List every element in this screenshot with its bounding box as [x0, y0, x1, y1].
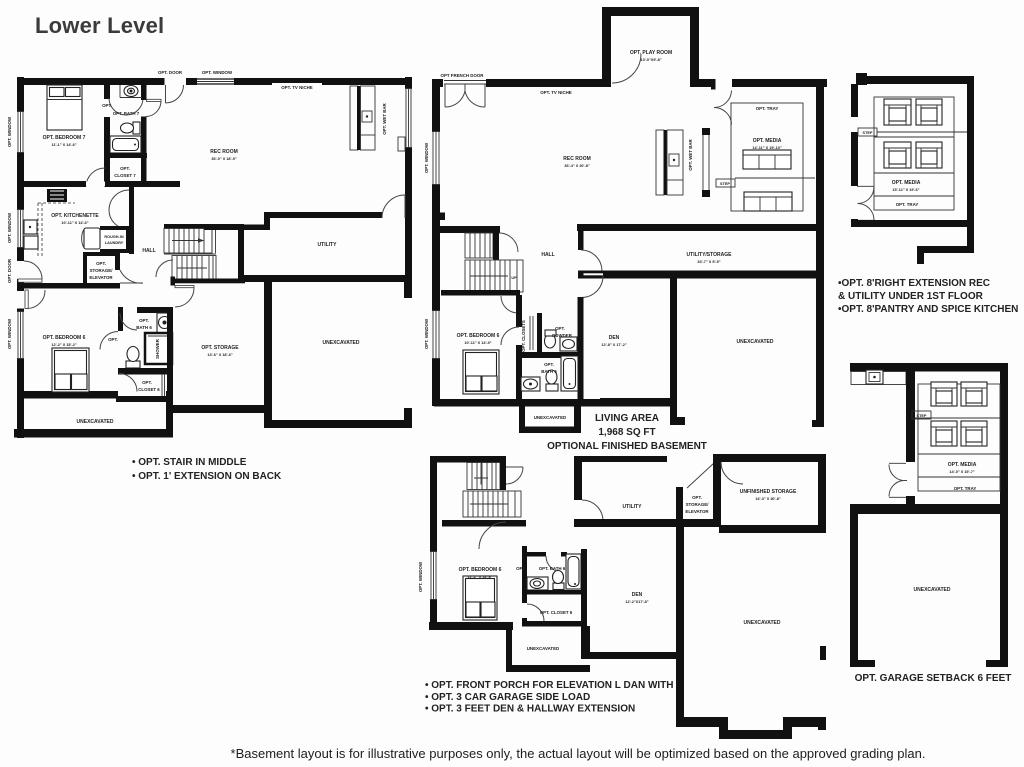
svg-text:UNEXCAVATED: UNEXCAVATED	[323, 340, 360, 346]
svg-text:REC ROOM: REC ROOM	[210, 149, 238, 155]
svg-text:OPT. WINDOW: OPT. WINDOW	[7, 318, 12, 349]
svg-text:• OPT. 3 FEET DEN & HALLWAY EX: • OPT. 3 FEET DEN & HALLWAY EXTENSION	[425, 704, 635, 715]
svg-text:ELEVATOR: ELEVATOR	[685, 509, 709, 514]
svg-text:OPT. WINDOW: OPT. WINDOW	[202, 70, 233, 75]
svg-text:36'-4" X 20'-8": 36'-4" X 20'-8"	[564, 164, 589, 168]
svg-text:12'-2" X 15'-2": 12'-2" X 15'-2"	[51, 343, 76, 347]
svg-text:OPT.: OPT.	[142, 380, 152, 385]
svg-text:OPTIONAL FINISHED BASEMENT: OPTIONAL FINISHED BASEMENT	[547, 441, 707, 452]
svg-text:BATH 6: BATH 6	[541, 369, 557, 374]
svg-text:UTILITY/STORAGE: UTILITY/STORAGE	[687, 252, 733, 258]
svg-text:BATH 6: BATH 6	[136, 325, 152, 330]
svg-text:OPT. CLOSET 6: OPT. CLOSET 6	[540, 610, 573, 615]
svg-text:OPT.: OPT.	[96, 261, 106, 266]
svg-text:OPT. WINDOW: OPT. WINDOW	[418, 561, 423, 592]
svg-text:13'-0"X9'-8": 13'-0"X9'-8"	[640, 58, 661, 62]
svg-text:OPT. WET BAR: OPT. WET BAR	[382, 102, 387, 134]
svg-text:STEP: STEP	[917, 414, 927, 418]
svg-text:UTILITY: UTILITY	[318, 242, 338, 248]
svg-text:LIVING AREA: LIVING AREA	[595, 413, 659, 424]
svg-text:OPT. PLAY ROOM: OPT. PLAY ROOM	[630, 50, 672, 56]
svg-text:Lower Level: Lower Level	[35, 13, 164, 38]
svg-text:• OPT. STAIR IN MIDDLE: • OPT. STAIR IN MIDDLE	[132, 457, 247, 468]
svg-text:OPT. WINDOW: OPT. WINDOW	[7, 212, 12, 243]
svg-text:OPT. KITCHENETTE: OPT. KITCHENETTE	[51, 213, 99, 219]
svg-text:36'-0" X 18'-9": 36'-0" X 18'-9"	[211, 157, 236, 161]
svg-text:REC ROOM: REC ROOM	[563, 156, 591, 162]
svg-text:10'-11" X 14'-6": 10'-11" X 14'-6"	[61, 221, 88, 225]
svg-text:OPT. MEDIA: OPT. MEDIA	[892, 180, 921, 186]
svg-text:OPT. TRAY: OPT. TRAY	[756, 106, 779, 111]
svg-text:OPT.: OPT.	[102, 103, 112, 108]
svg-text:ELEVATOR: ELEVATOR	[89, 275, 113, 280]
svg-text:OPT. BEDROOM 7: OPT. BEDROOM 7	[43, 135, 86, 141]
svg-text:UNEXCAVATED: UNEXCAVATED	[527, 646, 559, 651]
svg-text:OPT. TV NICHE: OPT. TV NICHE	[281, 85, 313, 90]
svg-text:33'-7" X 5'-9": 33'-7" X 5'-9"	[697, 260, 720, 264]
svg-text:UNEXCAVATED: UNEXCAVATED	[914, 587, 951, 593]
svg-text:•OPT. 8'RIGHT EXTENSION REC: •OPT. 8'RIGHT EXTENSION REC	[838, 278, 990, 289]
svg-text:ROUGH-IN: ROUGH-IN	[104, 235, 123, 239]
svg-text:10'-11" X 14'-9": 10'-11" X 14'-9"	[464, 341, 491, 345]
svg-text:LAUNDRY: LAUNDRY	[105, 241, 124, 245]
svg-text:OPT.: OPT.	[692, 495, 702, 500]
svg-text:HALL: HALL	[142, 248, 155, 254]
svg-text:OPT. BEDROOM 6: OPT. BEDROOM 6	[457, 333, 500, 339]
svg-text:OPT. TRAY: OPT. TRAY	[954, 486, 977, 491]
svg-text:OPT.: OPT.	[544, 362, 554, 367]
svg-text:POWDER: POWDER	[552, 333, 573, 338]
svg-text:DEN: DEN	[609, 335, 620, 341]
svg-text:• OPT. 3 CAR GARAGE SIDE LOAD: • OPT. 3 CAR GARAGE SIDE LOAD	[425, 692, 590, 703]
svg-text:OPT. WINDOW: OPT. WINDOW	[424, 318, 429, 349]
svg-text:HALL: HALL	[541, 252, 554, 258]
svg-text:1,968 SQ FT: 1,968 SQ FT	[598, 427, 655, 438]
svg-text:OPT. MEDIA: OPT. MEDIA	[948, 462, 977, 468]
svg-text:14'-0" X 19'-7": 14'-0" X 19'-7"	[949, 470, 974, 474]
svg-text:OPT. TV NICHE: OPT. TV NICHE	[540, 90, 572, 95]
svg-text:UTILITY: UTILITY	[623, 504, 643, 510]
svg-text:OPT. STORAGE: OPT. STORAGE	[201, 345, 239, 351]
svg-text:OPT.: OPT.	[516, 566, 526, 571]
svg-text:UNFINISHED STORAGE: UNFINISHED STORAGE	[740, 489, 797, 495]
svg-text:OPT. TRAY: OPT. TRAY	[896, 202, 919, 207]
svg-text:UNEXCAVATED: UNEXCAVATED	[534, 415, 566, 420]
svg-text:OPT.: OPT.	[120, 166, 130, 171]
svg-text:STORAGE/: STORAGE/	[686, 502, 710, 507]
svg-text:OPT. WINDOW: OPT. WINDOW	[424, 142, 429, 173]
svg-text:OPT. BEDROOM 6: OPT. BEDROOM 6	[459, 567, 502, 573]
svg-text:• OPT. 1' EXTENSION ON BACK: • OPT. 1' EXTENSION ON BACK	[132, 471, 282, 482]
svg-text:OPT. BATH 6: OPT. BATH 6	[539, 566, 566, 571]
svg-text:OPT. BEDROOM 6: OPT. BEDROOM 6	[43, 335, 86, 341]
svg-text:OPT. WET BAR: OPT. WET BAR	[688, 138, 693, 170]
svg-text:STEP: STEP	[863, 131, 873, 135]
svg-text:*Basement layout is for illust: *Basement layout is for illustrative pur…	[231, 746, 926, 761]
svg-text:UNEXCAVATED: UNEXCAVATED	[737, 339, 774, 345]
svg-text:13'-6" X 18'-6": 13'-6" X 18'-6"	[207, 353, 232, 357]
svg-text:STEP: STEP	[720, 182, 730, 186]
svg-text:OPT. GARAGE SETBACK 6 FEET: OPT. GARAGE SETBACK 6 FEET	[855, 673, 1012, 684]
svg-text:OPT. DOOR: OPT. DOOR	[158, 70, 183, 75]
svg-text:12'-2"X17'-8": 12'-2"X17'-8"	[625, 600, 648, 604]
svg-text:OPT. BATH 7: OPT. BATH 7	[113, 111, 140, 116]
svg-text:16'-3" X 30'-8": 16'-3" X 30'-8"	[755, 497, 780, 501]
svg-text:12'-2" X 14'-6": 12'-2" X 14'-6"	[467, 575, 492, 579]
svg-text:OPT.: OPT.	[139, 318, 149, 323]
svg-text:SHOWER: SHOWER	[155, 338, 160, 359]
svg-text:14'-11" X 19'-10": 14'-11" X 19'-10"	[752, 146, 781, 150]
svg-text:OPT.: OPT.	[108, 337, 118, 342]
svg-text:UNEXCAVATED: UNEXCAVATED	[744, 620, 781, 626]
svg-text:12'-8" X 17'-2": 12'-8" X 17'-2"	[601, 343, 626, 347]
svg-text:11'-1" X 14'-6": 11'-1" X 14'-6"	[51, 143, 76, 147]
svg-text:OPT FRENCH DOOR: OPT FRENCH DOOR	[441, 73, 485, 78]
svg-text:OPT. WINDOW: OPT. WINDOW	[7, 116, 12, 147]
svg-text:CLOSET 7: CLOSET 7	[114, 173, 136, 178]
svg-text:OPT. DOOR: OPT. DOOR	[7, 258, 12, 283]
svg-text:& UTILITY UNDER 1ST FLOOR: & UTILITY UNDER 1ST FLOOR	[838, 291, 984, 302]
svg-text:•OPT. 8'PANTRY AND SPICE KITCH: •OPT. 8'PANTRY AND SPICE KITCHEN	[838, 304, 1018, 315]
svg-text:• OPT. FRONT PORCH FOR ELEVATI: • OPT. FRONT PORCH FOR ELEVATION L DAN W…	[425, 680, 674, 691]
svg-text:STORAGE/: STORAGE/	[90, 268, 114, 273]
svg-text:OPT. MEDIA: OPT. MEDIA	[753, 138, 782, 144]
svg-text:OPT.: OPT.	[555, 326, 565, 331]
svg-text:DEN: DEN	[632, 592, 643, 598]
svg-text:UNEXCAVATED: UNEXCAVATED	[77, 419, 114, 425]
svg-text:15'-11" X 19'-6": 15'-11" X 19'-6"	[892, 188, 919, 192]
svg-text:CLOSET 6: CLOSET 6	[138, 387, 160, 392]
svg-text:OPT. CLOSETS: OPT. CLOSETS	[521, 320, 526, 352]
svg-text:UP: UP	[511, 276, 517, 280]
